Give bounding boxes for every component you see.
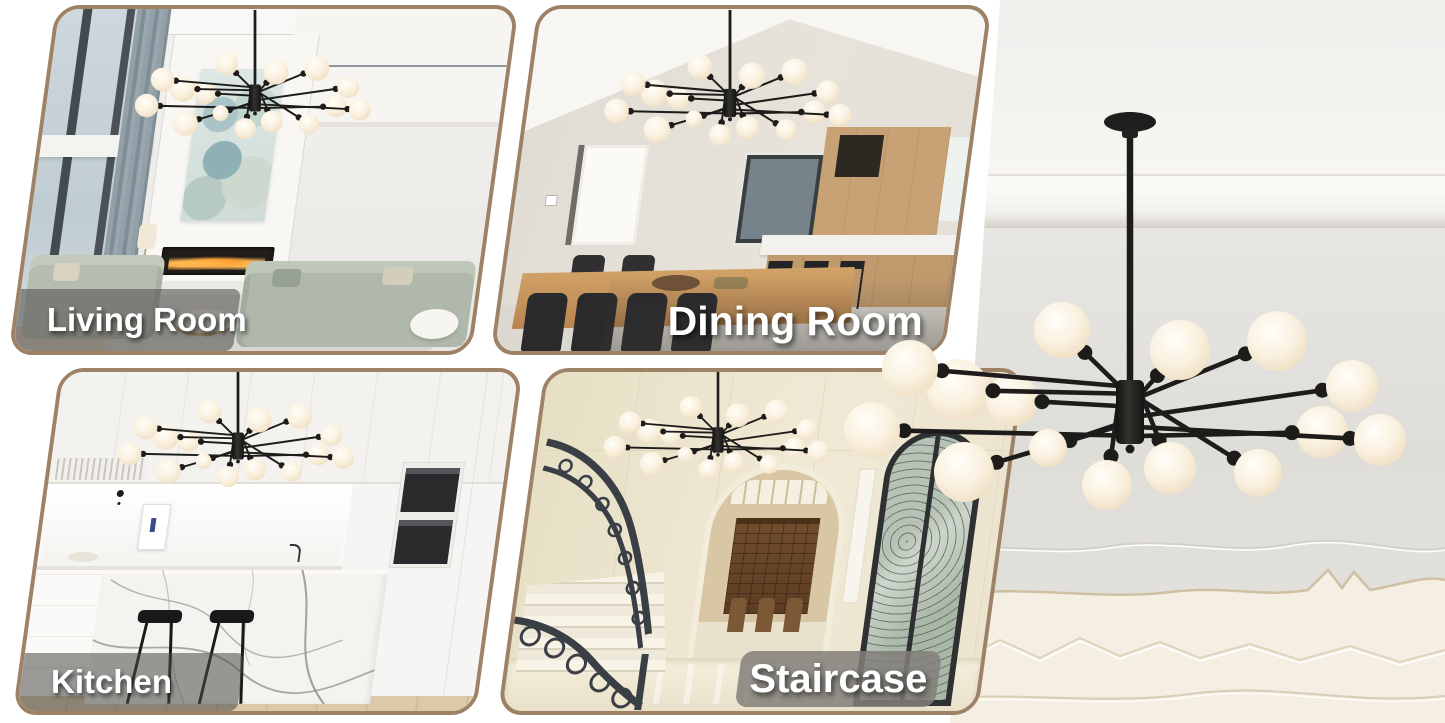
island-counter (760, 235, 961, 255)
glass-railing (302, 65, 515, 67)
product-collage: Living Room (0, 0, 1445, 723)
open-shelf (834, 135, 884, 177)
mezzanine (281, 9, 519, 127)
panel-label: Dining Room (668, 298, 923, 345)
label-band: Staircase (735, 651, 943, 707)
vent-grille (55, 458, 148, 480)
dining-chair (521, 293, 569, 351)
wall-oven-lower (393, 520, 453, 564)
label-band: Living Room (13, 289, 241, 351)
product-photo (930, 0, 1445, 723)
panel-label: Staircase (738, 651, 938, 707)
pillow (382, 267, 414, 285)
panel-dining-room: Dining Room (490, 5, 992, 355)
panel-staircase: Staircase (497, 368, 1025, 715)
pillow (271, 269, 301, 287)
panel-label: Living Room (17, 289, 237, 351)
thermostat (544, 195, 558, 206)
kitchen-window (735, 155, 823, 243)
label-band: Kitchen (17, 653, 245, 711)
floor-lamp (137, 223, 159, 249)
ceiling (930, 0, 1445, 174)
panel-living-room: Living Room (8, 5, 519, 355)
crown-molding (930, 174, 1445, 228)
pillow (52, 263, 80, 281)
door (571, 145, 649, 245)
wall-oven-upper (400, 468, 460, 512)
panel-label: Kitchen (21, 653, 241, 711)
faucet (287, 544, 301, 562)
panel-kitchen: Kitchen (12, 368, 523, 715)
wavy-wall-relief (930, 520, 1445, 723)
vaulted-ceiling (524, 9, 988, 139)
transom-window (728, 480, 831, 504)
stool-seat (137, 610, 183, 623)
stool-seat (209, 610, 255, 623)
